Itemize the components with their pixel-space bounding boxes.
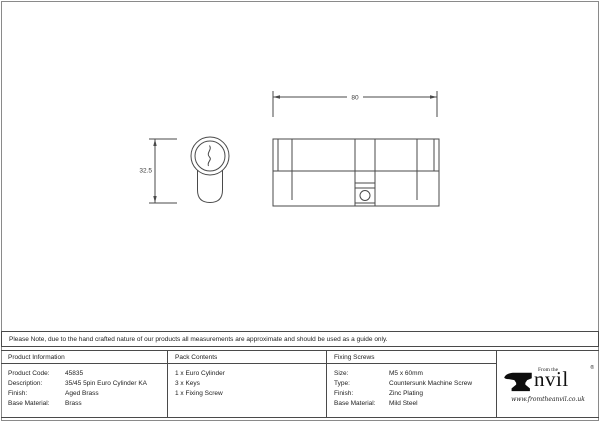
row-value: 35/45 5pin Euro Cylinder KA [65,379,147,389]
row-label: Type: [334,379,389,389]
note-box: Please Note, due to the hand crafted nat… [1,331,599,347]
table-row: Finish: Zinc Plating [334,389,496,399]
brand-logo-cell: From the nvil ® www.fromtheanvil.co.uk [497,351,599,417]
pack-contents-header: Pack Contents [168,351,326,364]
product-information-header: Product Information [1,351,167,364]
table-row: Base Material: Mild Steel [334,399,496,409]
row-label: Description: [8,379,65,389]
row-value: Mild Steel [389,399,418,409]
spec-table: Product Information Product Code: 45835 … [1,350,599,418]
spec-sheet-page: 80 32.5 [0,0,600,422]
row-value: Aged Brass [65,389,99,399]
registered-trademark-symbol: ® [590,365,594,371]
cylinder-side-view [273,139,439,206]
row-label: Finish: [8,389,65,399]
anvil-icon [503,370,533,392]
row-value: Countersunk Machine Screw [389,379,472,389]
table-row: Finish: Aged Brass [8,389,167,399]
row-value: 45835 [65,369,83,379]
row-label: Base Material: [334,399,389,409]
table-row: Description: 35/45 5pin Euro Cylinder KA [8,379,167,389]
technical-drawing: 80 32.5 [0,0,600,330]
row-label: Base Material: [8,399,65,409]
row-label: Size: [334,369,389,379]
logo-wordmark: nvil [534,369,569,390]
row-value: Zinc Plating [389,389,423,399]
row-label: Finish: [334,389,389,399]
table-row: Product Code: 45835 [8,369,167,379]
width-dimension-label: 80 [351,95,359,102]
table-row: Type: Countersunk Machine Screw [334,379,496,389]
fixing-screws-header: Fixing Screws [327,351,496,364]
product-information-column: Product Information Product Code: 45835 … [1,351,168,417]
list-item: 3 x Keys [175,379,326,389]
width-dimension: 80 [273,91,437,117]
cylinder-front-view [191,137,229,203]
table-row: Base Material: Brass [8,399,167,409]
row-label: Product Code: [8,369,65,379]
height-dimension: 32.5 [139,139,177,203]
height-dimension-label: 32.5 [139,168,152,175]
fixing-screw-hole [360,191,370,201]
pack-contents-column: Pack Contents 1 x Euro Cylinder 3 x Keys… [168,351,327,417]
list-item: 1 x Euro Cylinder [175,369,326,379]
from-the-anvil-logo: From the nvil ® www.fromtheanvil.co.uk [501,362,595,406]
table-row: Size: M5 x 60mm [334,369,496,379]
row-value: Brass [65,399,82,409]
note-text: Please Note, due to the hand crafted nat… [9,336,388,343]
keyhole-icon [208,146,210,167]
row-value: M5 x 60mm [389,369,423,379]
list-item: 1 x Fixing Screw [175,389,326,399]
fixing-screws-column: Fixing Screws Size: M5 x 60mm Type: Coun… [327,351,497,417]
logo-url: www.fromtheanvil.co.uk [501,396,595,403]
